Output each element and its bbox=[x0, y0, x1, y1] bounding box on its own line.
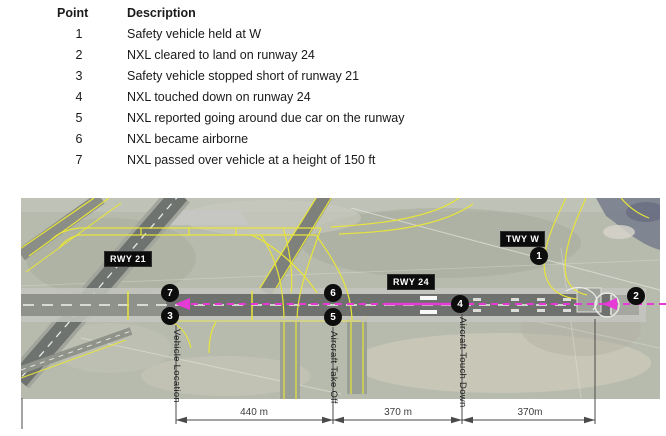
table-row-point: 7 bbox=[57, 150, 101, 171]
vehicle-location-label: Vehicle Location bbox=[171, 329, 182, 403]
incident-figure: Point Description 1 Safety vehicle held … bbox=[0, 0, 666, 436]
aerial-photo-svg bbox=[21, 198, 660, 399]
aircraft-take-off-label: Aircraft Take Off bbox=[328, 331, 339, 404]
dimension-370m-right: 370m bbox=[517, 407, 542, 418]
point-marker-2: 2 bbox=[627, 287, 645, 305]
table-row-description: NXL touched down on runway 24 bbox=[127, 87, 405, 108]
table-row-point: 5 bbox=[57, 108, 101, 129]
point-marker-4: 4 bbox=[451, 295, 469, 313]
taxiway-vertical-right bbox=[343, 315, 371, 394]
table-row-point: 4 bbox=[57, 87, 101, 108]
point-marker-5: 5 bbox=[324, 308, 342, 326]
dimension-440m: 440 m bbox=[240, 407, 268, 418]
table-row-description: Safety vehicle stopped short of runway 2… bbox=[127, 66, 405, 87]
twy-w-label: TWY W bbox=[500, 231, 545, 247]
point-marker-6: 6 bbox=[324, 284, 342, 302]
description-column-header: Description bbox=[127, 3, 405, 24]
table-row-point: 1 bbox=[57, 24, 101, 45]
table-row-point: 3 bbox=[57, 66, 101, 87]
point-marker-3: 3 bbox=[161, 307, 179, 325]
table-row-point: 6 bbox=[57, 129, 101, 150]
rwy-21-label: RWY 21 bbox=[104, 251, 152, 267]
dimension-370m-left: 370 m bbox=[384, 407, 412, 418]
aircraft-touch-down-label: Aircraft Touch Down bbox=[457, 317, 468, 408]
table-row-description: Safety vehicle held at W bbox=[127, 24, 405, 45]
point-marker-7: 7 bbox=[161, 284, 179, 302]
table-row-description: NXL reported going around due car on the… bbox=[127, 108, 405, 129]
table-row-description: NXL passed over vehicle at a height of 1… bbox=[127, 150, 405, 171]
point-marker-1: 1 bbox=[530, 247, 548, 265]
event-table: Point Description 1 Safety vehicle held … bbox=[57, 3, 405, 171]
table-row-description: NXL became airborne bbox=[127, 129, 405, 150]
aerial-photo bbox=[21, 198, 660, 399]
rwy-24-label: RWY 24 bbox=[387, 274, 435, 290]
table-row-point: 2 bbox=[57, 45, 101, 66]
taxiway-vertical-left bbox=[276, 315, 304, 399]
table-row-description: NXL cleared to land on runway 24 bbox=[127, 45, 405, 66]
point-column-header: Point bbox=[57, 3, 101, 24]
